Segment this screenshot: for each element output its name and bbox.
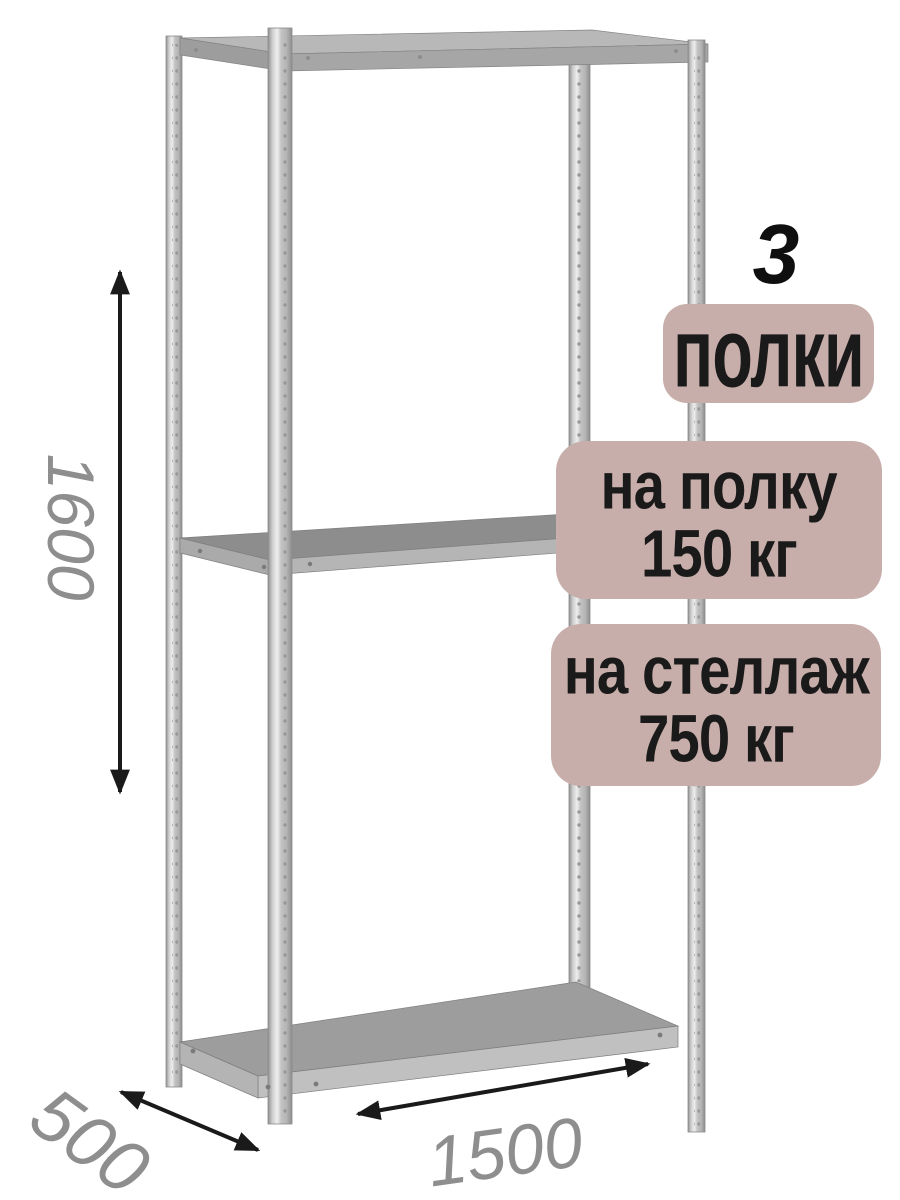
bottom-shelf <box>180 982 678 1098</box>
height-dimension-label: 1600 <box>34 454 108 601</box>
rack-load-badge-line2: 750 кг <box>638 701 794 777</box>
product-diagram: 1600 500 1500 3 полки на полку 150 кг на… <box>0 0 900 1200</box>
shelf-load-badge-line2: 150 кг <box>641 516 797 592</box>
shelving-rack-illustration: 1600 500 1500 <box>0 0 900 1200</box>
rear-left-post <box>166 36 182 1087</box>
depth-dimension-label: 500 <box>16 1071 165 1200</box>
shelf-load-badge-line1: на полку <box>601 448 837 524</box>
front-left-post <box>268 28 292 1124</box>
shelf-count-badge: полки <box>663 304 874 403</box>
top-shelf <box>180 30 708 71</box>
shelf-count-badge-label: полки <box>673 284 864 423</box>
shelf-load-badge: на полку 150 кг <box>556 441 882 599</box>
rack-load-badge-line1: на стеллаж <box>563 633 868 709</box>
rack-load-badge: на стеллаж 750 кг <box>551 624 881 786</box>
width-dimension-label: 1500 <box>422 1103 587 1200</box>
